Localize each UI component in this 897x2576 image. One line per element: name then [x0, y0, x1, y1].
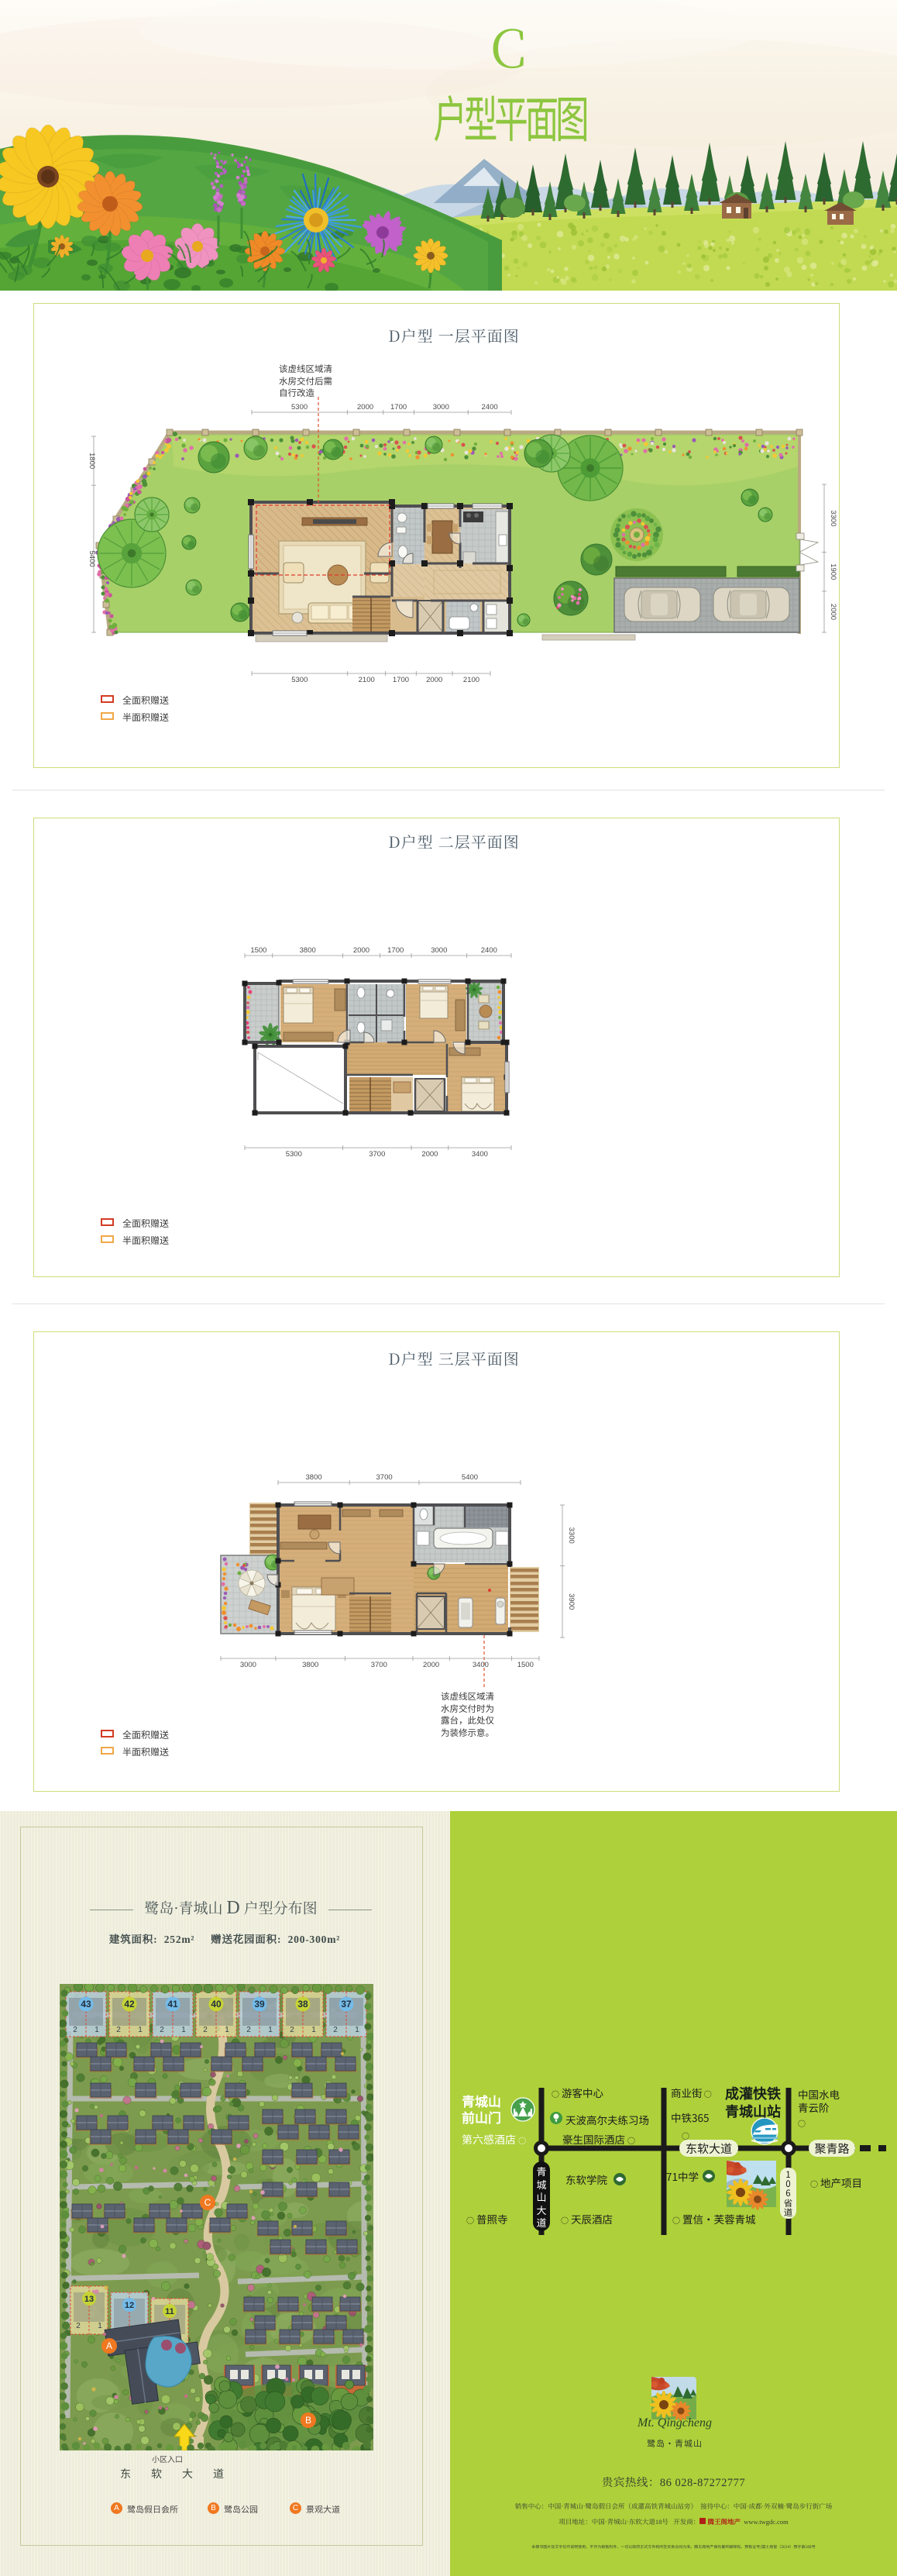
- svg-text:1: 1: [98, 2322, 102, 2330]
- svg-text:聚青路: 聚青路: [814, 2140, 849, 2157]
- svg-text:11: 11: [165, 2307, 174, 2316]
- svg-text:2000: 2000: [357, 403, 373, 412]
- svg-text:2100: 2100: [463, 676, 479, 684]
- svg-text:3800: 3800: [306, 1473, 322, 1482]
- svg-text:3400: 3400: [473, 1661, 489, 1669]
- svg-text:3800: 3800: [302, 1661, 318, 1669]
- svg-text:1: 1: [268, 2026, 273, 2034]
- svg-text:1: 1: [355, 2026, 359, 2034]
- svg-text:3000: 3000: [433, 403, 449, 412]
- svg-text:5300: 5300: [291, 676, 308, 684]
- svg-text:A: A: [106, 2340, 112, 2351]
- svg-text:2: 2: [116, 2026, 121, 2034]
- svg-text:2400: 2400: [481, 946, 497, 955]
- svg-text:41: 41: [167, 1999, 178, 2009]
- svg-text:39: 39: [254, 1999, 265, 2009]
- svg-text:2: 2: [160, 2026, 164, 2034]
- svg-text:1800: 1800: [88, 453, 96, 469]
- svg-text:1700: 1700: [393, 676, 409, 684]
- svg-text:5300: 5300: [291, 403, 308, 412]
- svg-text:1500: 1500: [250, 946, 266, 955]
- svg-text:43: 43: [81, 1999, 91, 2009]
- svg-text:5400: 5400: [462, 1473, 478, 1482]
- svg-text:38: 38: [297, 1999, 308, 2009]
- svg-text:1700: 1700: [390, 403, 407, 412]
- svg-text:42: 42: [124, 1999, 135, 2009]
- svg-text:2100: 2100: [359, 676, 375, 684]
- svg-text:3300: 3300: [829, 510, 837, 526]
- svg-text:B: B: [305, 2415, 311, 2426]
- svg-text:2: 2: [203, 2026, 208, 2034]
- svg-text:1900: 1900: [829, 563, 837, 580]
- svg-text:1: 1: [138, 2026, 143, 2034]
- svg-text:2400: 2400: [482, 403, 498, 412]
- svg-text:3400: 3400: [472, 1150, 488, 1159]
- svg-text:1: 1: [181, 2026, 186, 2034]
- svg-text:5300: 5300: [286, 1150, 302, 1159]
- svg-text:2000: 2000: [423, 1661, 439, 1669]
- svg-text:2000: 2000: [353, 946, 369, 955]
- svg-text:2: 2: [333, 2026, 338, 2034]
- svg-text:5400: 5400: [88, 551, 96, 567]
- svg-text:3800: 3800: [300, 946, 316, 955]
- svg-text:2000: 2000: [421, 1150, 438, 1159]
- svg-text:2: 2: [76, 2322, 81, 2330]
- svg-text:1: 1: [311, 2026, 316, 2034]
- svg-text:3000: 3000: [240, 1661, 256, 1669]
- svg-text:1500: 1500: [517, 1661, 534, 1669]
- svg-text:40: 40: [211, 1999, 222, 2009]
- svg-text:13: 13: [84, 2295, 94, 2304]
- svg-text:C: C: [204, 2197, 211, 2208]
- svg-text:12: 12: [125, 2301, 134, 2310]
- svg-text:3300: 3300: [567, 1527, 576, 1544]
- svg-text:3700: 3700: [369, 1150, 385, 1159]
- svg-text:2: 2: [246, 2026, 251, 2034]
- svg-text:1700: 1700: [387, 946, 404, 955]
- svg-text:3700: 3700: [376, 1473, 393, 1482]
- svg-text:东软大道: 东软大道: [686, 2140, 732, 2157]
- svg-text:2: 2: [73, 2026, 77, 2034]
- svg-text:3700: 3700: [371, 1661, 387, 1669]
- svg-text:2: 2: [290, 2026, 294, 2034]
- svg-text:3000: 3000: [431, 946, 447, 955]
- svg-text:1: 1: [225, 2026, 229, 2034]
- svg-text:2000: 2000: [829, 604, 837, 620]
- svg-text:1: 1: [95, 2026, 99, 2034]
- svg-text:3900: 3900: [567, 1593, 576, 1610]
- svg-text:37: 37: [341, 1999, 352, 2009]
- svg-text:2000: 2000: [426, 676, 442, 684]
